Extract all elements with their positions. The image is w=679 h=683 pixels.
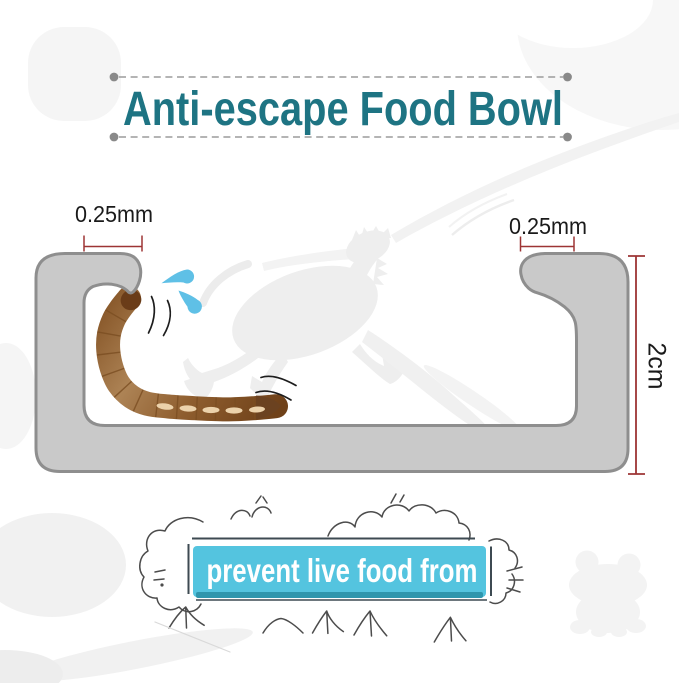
svg-text:prevent live food from: prevent live food from: [207, 552, 478, 589]
svg-text:0.25mm: 0.25mm: [509, 213, 587, 239]
svg-text:Anti-escape Food Bowl: Anti-escape Food Bowl: [123, 83, 563, 136]
svg-text:2cm: 2cm: [643, 342, 671, 389]
svg-text:0.25mm: 0.25mm: [75, 201, 153, 227]
